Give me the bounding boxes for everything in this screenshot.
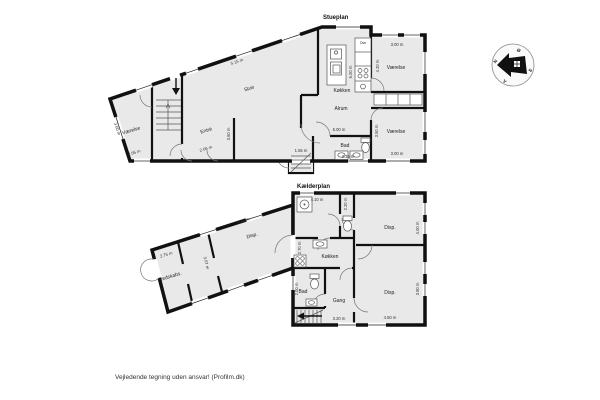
dim-koekken-h: 6.00 m [348,65,353,78]
dim-bad-h: 2.00 m [294,282,299,295]
dim-toilet-h: 2.20 m [343,197,348,210]
stueplan-title: Stueplan [323,15,349,21]
disclaimer-text: Vejledende tegning uden ansvar! (Profilm… [115,374,245,381]
room-label-gang: Gang [333,298,345,304]
dim-vaerelse-ne-h: 4.20 m [375,59,380,72]
room-label-disp-se: Disp. [384,290,395,296]
floorplan-page: Stueplan [0,0,600,400]
room-label-vaerelse-ne: Værelse [387,65,406,71]
kaelderplan-plan: Kælderplan [141,184,425,325]
dim-disp-se-h: 3.90 m [415,282,420,295]
kaelder-wing-outline [152,205,293,312]
kitchen-cabinet-run [355,38,371,92]
floorplan-drawing: Stueplan [0,0,600,400]
room-label-koekken-k: Køkken [322,254,339,260]
compass-rose: N Ø S V [492,44,534,86]
room-label-vaerelse-se: Værelse [387,129,406,135]
dim-alrum-w: 5.00 m [333,127,346,132]
dim-gang-w: 3.20 m [333,316,346,321]
room-label-bad-k: Bad [299,289,308,295]
dim-bad-w: 3.35 m [342,154,355,159]
dim-vaerelse-se-w: 3.00 m [391,151,404,156]
dim-koekken-h-k: 2.70 m [297,241,302,254]
room-label-disp-ne: Disp. [384,225,395,231]
dim-disp-ne-h: 4.00 m [415,221,420,234]
room-label-bad: Bad [341,143,350,149]
dim-entre-h: 3.60 m [226,127,231,140]
room-label-alrum: Alrum [334,106,347,112]
dim-vaerelse-se-h: 3.50 m [374,124,379,137]
kitchen-island [327,45,346,85]
room-label-koekken: Køkken [334,88,351,94]
dim-entry-w: 1.55 m [295,148,308,153]
kaelderplan-title: Kælderplan [297,184,330,190]
dim-vaerelse-ne-w: 3.00 m [391,42,404,47]
dim-bad-top-w: 4.10 m [311,197,324,202]
room-label-ovn: Ovn [360,41,367,45]
stueplan-plan: Stueplan [110,15,425,173]
dim-disp-se-w: 4.50 m [384,315,397,320]
